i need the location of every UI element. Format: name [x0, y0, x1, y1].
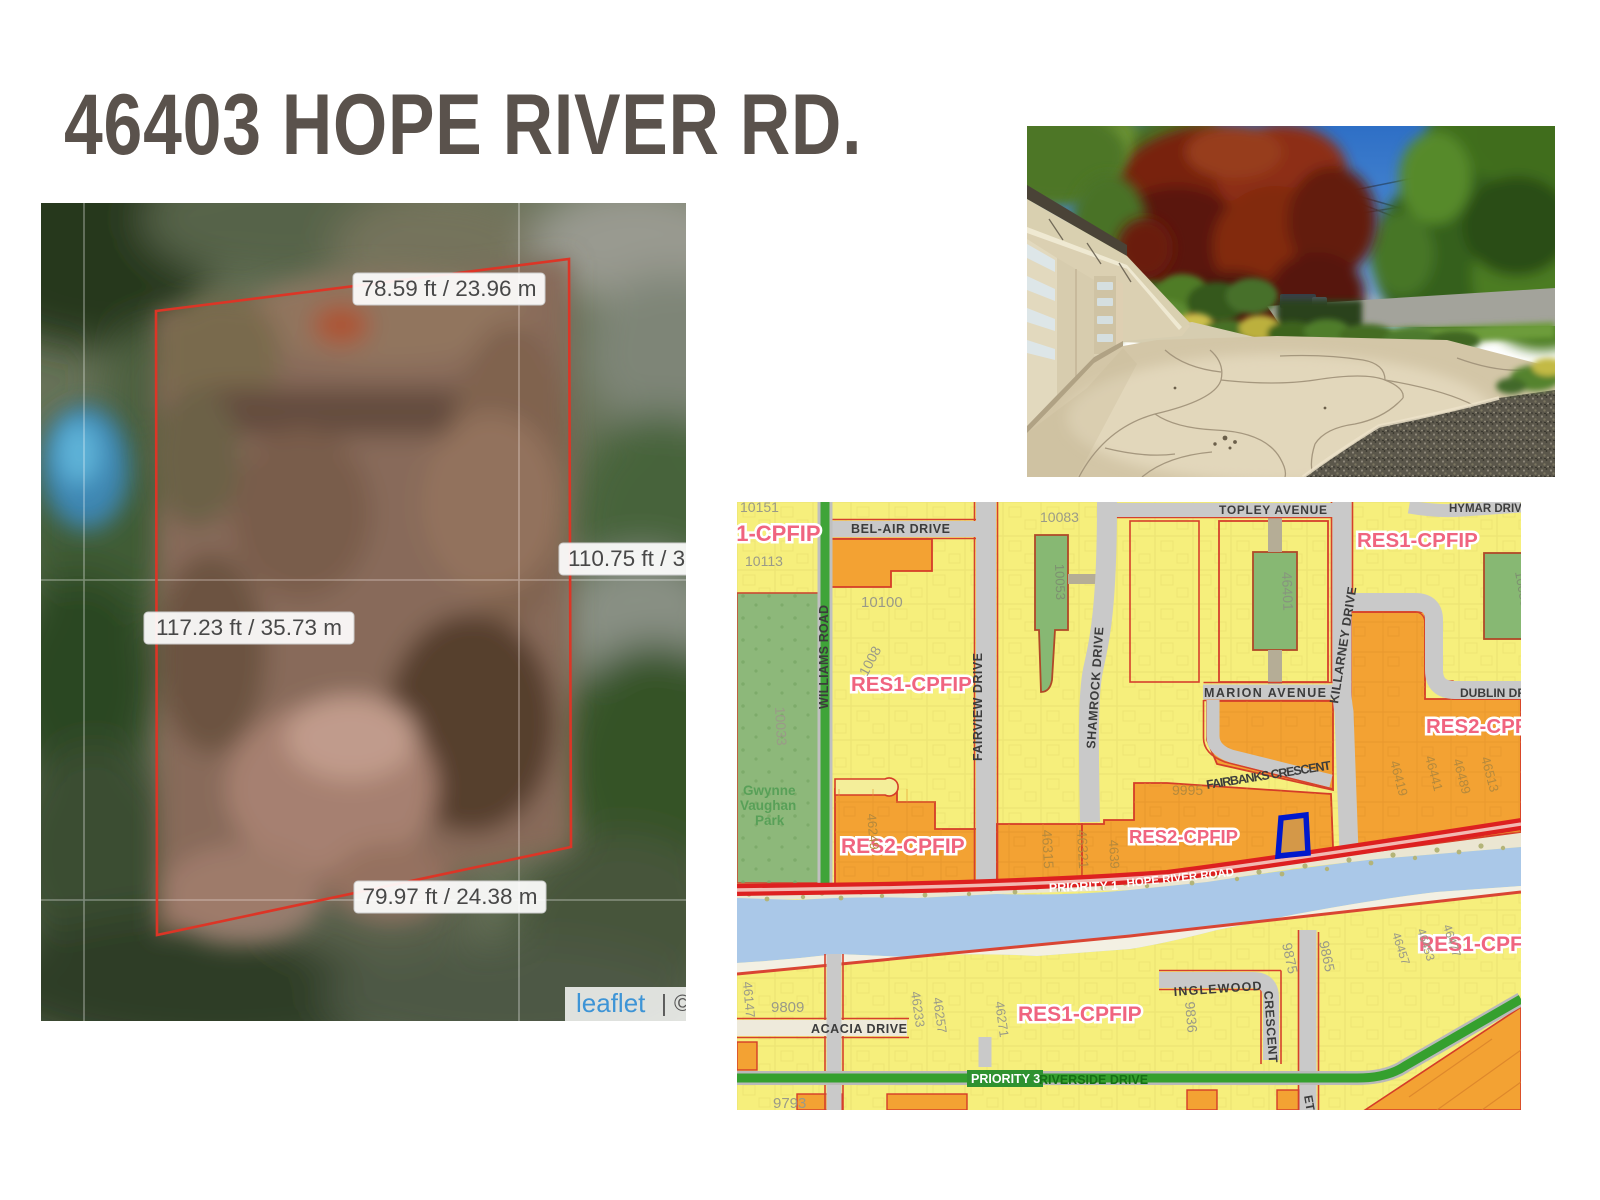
svg-text:|: | [661, 990, 667, 1016]
svg-text:9809: 9809 [771, 999, 804, 1016]
svg-text:ET: ET [1301, 1094, 1318, 1110]
svg-text:110.75 ft / 3: 110.75 ft / 3 [568, 546, 685, 571]
svg-text:ACACIA DRIVE: ACACIA DRIVE [811, 1022, 907, 1036]
svg-text:10113: 10113 [745, 553, 783, 569]
svg-text:RIVERSIDE DRIVE: RIVERSIDE DRIVE [1039, 1073, 1148, 1087]
svg-text:46147: 46147 [740, 981, 758, 1018]
svg-text:RES2-CPFIP: RES2-CPFIP [841, 835, 965, 858]
svg-text:46401: 46401 [1279, 572, 1296, 612]
svg-text:4639: 4639 [1106, 839, 1122, 869]
svg-text:10151: 10151 [740, 502, 779, 515]
svg-text:9995: 9995 [1172, 782, 1203, 798]
svg-text:MARION AVENUE: MARION AVENUE [1204, 686, 1326, 700]
svg-text:DUBLIN DR: DUBLIN DR [1460, 686, 1521, 700]
svg-text:RES1-CPFIP: RES1-CPFIP [1018, 1003, 1142, 1026]
svg-text:TOPLEY AVENUE: TOPLEY AVENUE [1219, 503, 1327, 517]
svg-text:Park: Park [755, 813, 785, 828]
svg-text:WILLIAMS ROAD: WILLIAMS ROAD [817, 605, 831, 709]
svg-text:46315: 46315 [1039, 829, 1057, 869]
svg-text:10033: 10033 [772, 706, 790, 746]
svg-text:HYMAR DRIV: HYMAR DRIV [1449, 503, 1521, 515]
svg-text:PRIORITY 3: PRIORITY 3 [971, 1072, 1040, 1086]
svg-text:RES1-CPFIP: RES1-CPFIP [737, 521, 821, 546]
svg-text:10083: 10083 [1040, 509, 1079, 525]
svg-text:BEL-AIR DRIVE: BEL-AIR DRIVE [851, 522, 950, 536]
svg-text:78.59 ft / 23.96 m: 78.59 ft / 23.96 m [361, 276, 536, 301]
svg-text:RES2-CPFIP: RES2-CPFIP [1426, 715, 1521, 738]
svg-text:FAIRVIEW DRIVE: FAIRVIEW DRIVE [971, 653, 985, 761]
svg-text:117.23 ft / 35.73 m: 117.23 ft / 35.73 m [156, 615, 342, 640]
svg-text:Vaughan: Vaughan [740, 798, 796, 813]
svg-text:PRIORITY 1: PRIORITY 1 [1049, 879, 1119, 895]
svg-text:79.97 ft / 24.38 m: 79.97 ft / 24.38 m [362, 884, 537, 909]
svg-text:10100: 10100 [861, 594, 903, 611]
svg-text:46249: 46249 [864, 813, 882, 850]
svg-text:Gwynne: Gwynne [743, 783, 796, 798]
svg-text:©: © [674, 990, 686, 1016]
svg-text:RES2-CPFIP: RES2-CPFIP [1129, 826, 1238, 847]
svg-text:leaflet: leaflet [576, 988, 646, 1018]
svg-text:46321: 46321 [1074, 829, 1092, 869]
svg-text:10053: 10053 [1052, 564, 1068, 601]
svg-text:9836: 9836 [1182, 1001, 1201, 1034]
svg-text:RES1-CPFIP: RES1-CPFIP [1357, 529, 1478, 552]
svg-text:9793: 9793 [773, 1095, 806, 1110]
